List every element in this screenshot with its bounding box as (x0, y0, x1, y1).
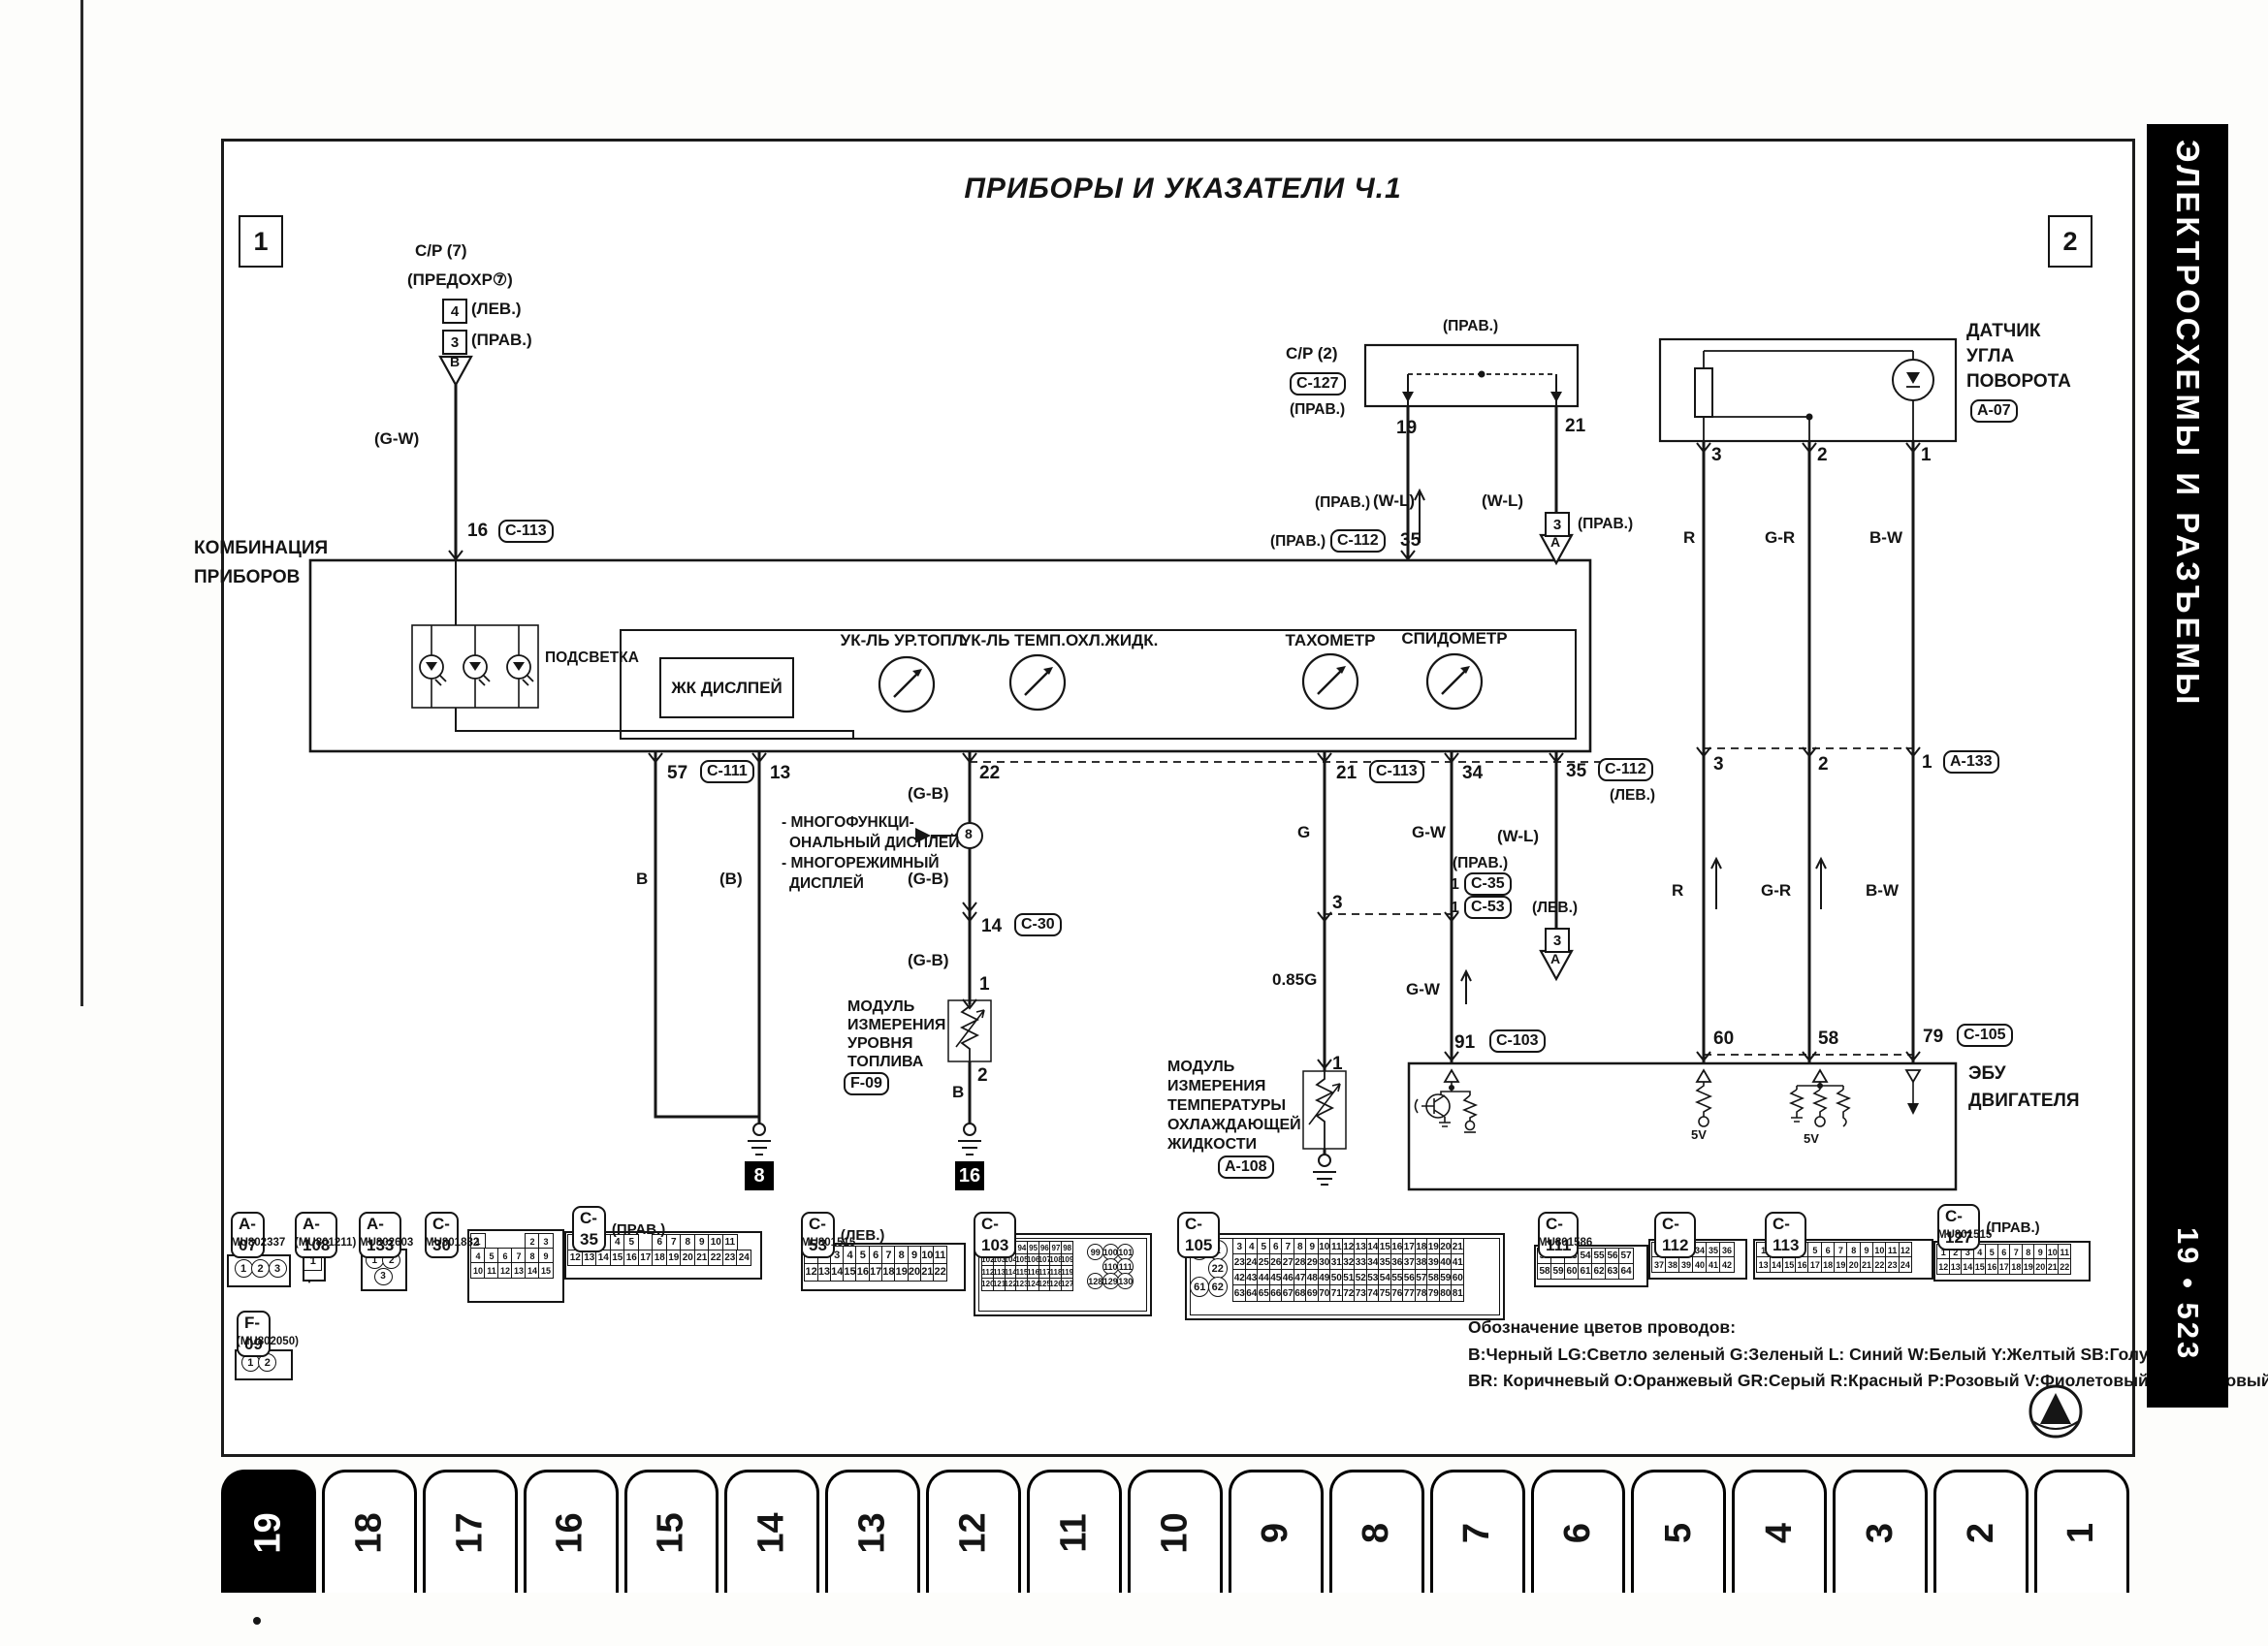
wire-gw2-label: G-W (1406, 981, 1440, 999)
pin-cell: 60 (1451, 1269, 1464, 1286)
connector-id: C-111 (1538, 1212, 1579, 1258)
connector-label-C-35: C-35(ПРАВ.) (572, 1206, 665, 1252)
coolant-line-1: МОДУЛЬ (1167, 1059, 1234, 1076)
cp2-bracket (1365, 345, 1578, 406)
pin-cell: 99 (1087, 1244, 1103, 1260)
pin-cell: 127 (1061, 1278, 1073, 1291)
connector-code-F-09: (MU802050) (237, 1336, 299, 1347)
wire-b2-label: (B) (719, 870, 743, 889)
tab-8[interactable]: 8 (1329, 1470, 1424, 1593)
connector-label-C-30: C-30 (425, 1212, 459, 1258)
wire-bw-bottom: B-W (1866, 882, 1899, 901)
pin-21-top: 21 (1565, 417, 1585, 437)
legend-line-1: В:Черный LG:Светло зеленый G:Зеленый L: … (1468, 1345, 2180, 1364)
connector-ref-f09: F-09 (844, 1072, 889, 1095)
connector-ref-a108: A-108 (1218, 1155, 1274, 1179)
tab-3[interactable]: 3 (1833, 1470, 1928, 1593)
connector-code-A-07: MU802337 (231, 1237, 285, 1249)
w35-triangle-pin: 3 (1545, 928, 1570, 953)
cp2-top-side: (ПРАВ.) (1443, 318, 1498, 334)
connector-code-C-53: MU801515 (801, 1237, 855, 1249)
pin-cell: 64 (1618, 1263, 1634, 1280)
connector-code-A-108: (MU801211) (295, 1237, 356, 1249)
tab-4[interactable]: 4 (1732, 1470, 1827, 1593)
connector-ref-c103: C-103 (1489, 1029, 1546, 1053)
gauge-icons (879, 654, 1482, 712)
ecu-label-2: ДВИГАТЕЛЯ (1968, 1092, 2080, 1112)
connector-code-C-127: MU801515 (1937, 1229, 1992, 1241)
fuse-cp-label: C/P (7) (415, 242, 467, 261)
wire-gb1-label: (G-B) (908, 785, 948, 804)
cp2-side: (ПРАВ.) (1290, 401, 1345, 418)
tab-label: 6 (1557, 1522, 1599, 1542)
pin-cell: 130 (1117, 1273, 1134, 1289)
zone-marker-2: 2 (2048, 215, 2092, 268)
pin-cell: 3 (374, 1268, 393, 1285)
pin-cell: 24 (736, 1250, 751, 1266)
connector-ref-c127: C-127 (1290, 372, 1346, 396)
tab-10[interactable]: 10 (1128, 1470, 1223, 1593)
connector-ref-c112: C-112 (1598, 758, 1653, 781)
connector-label-C-105: C-105 (1177, 1212, 1220, 1258)
c35-pin: 1 (1451, 876, 1459, 894)
connector-id: A-108 (295, 1212, 337, 1258)
pin-34: 34 (1462, 764, 1483, 784)
tab-label: 9 (1255, 1522, 1296, 1542)
wire-bw-top: B-W (1869, 529, 1902, 548)
wire-gb3-label: (G-B) (908, 952, 948, 970)
pin-21: 21 (1336, 764, 1357, 784)
chapter-title: ЭЛЕКТРОСХЕМЫ И РАЗЪЕМЫ (2169, 140, 2206, 708)
fuel-pin-2: 2 (977, 1066, 988, 1087)
tab-label: 18 (348, 1512, 390, 1553)
pin-cell: 61 (1190, 1277, 1209, 1297)
wire-wl-left: (W-L) (1373, 492, 1415, 511)
ecu-box (1409, 1063, 1956, 1189)
sensor-label-3: ПОВОРОТА (1966, 372, 2071, 393)
tab-1[interactable]: 1 (2034, 1470, 2129, 1593)
connector-ref-c111: C-111 (700, 760, 754, 783)
connector-pins-A-07: 123 (233, 1260, 288, 1278)
ecu-5v-2: 5V (1804, 1132, 1819, 1146)
tab-5[interactable]: 5 (1631, 1470, 1726, 1593)
cp2-side-left: (ПРАВ.) (1315, 494, 1370, 511)
connector-code-A-133: MU802603 (359, 1237, 413, 1249)
wire-gw1-label: G-W (1412, 824, 1446, 842)
connector-label-F-09: F-09 (237, 1311, 271, 1357)
pin-cell: 11 (722, 1234, 738, 1250)
connector-pins-C-103: 99100101110111128129130 (1088, 1245, 1134, 1288)
connector-id: C-35 (572, 1206, 606, 1252)
fuel-wire-b: B (952, 1084, 964, 1102)
wire-gr-top: G-R (1765, 529, 1795, 548)
tab-7[interactable]: 7 (1430, 1470, 1525, 1593)
connector-pins-C-105: 3456789101112131415161718192021232425262… (1233, 1239, 1464, 1301)
connector-side: (ПРАВ.) (1986, 1219, 2039, 1236)
fuel-module-line-2: ИЗМЕРЕНИЯ (847, 1017, 945, 1034)
wire-wl-label: (W-L) (1497, 828, 1539, 846)
pin-cell: 15 (538, 1262, 554, 1279)
ecu-5v-1: 5V (1691, 1128, 1707, 1142)
connector-side: (ПРАВ.) (612, 1221, 665, 1238)
pin-cell: 41 (1451, 1253, 1464, 1271)
pin-3-mid: 3 (1332, 894, 1343, 914)
fuse-pin-right: 3 (442, 330, 467, 355)
wire-r-bottom: R (1672, 882, 1683, 901)
tab-label: 14 (751, 1512, 793, 1553)
tab-label: 8 (1356, 1522, 1397, 1542)
tab-19[interactable]: 19 (221, 1470, 316, 1593)
c112-side: (ЛЕВ.) (1610, 787, 1655, 804)
wire-gr-bottom: G-R (1761, 882, 1791, 901)
note-line-4: ДИСПЛЕЙ (789, 875, 864, 892)
pin-14: 14 (981, 917, 1002, 937)
connector-id: C-113 (1765, 1212, 1806, 1258)
connector-id: C-105 (1177, 1212, 1220, 1258)
note-line-1: - МНОГОФУНКЦИ- (782, 814, 914, 831)
tab-label: 1 (2060, 1522, 2102, 1542)
tab-2[interactable]: 2 (1933, 1470, 2028, 1593)
connector-id: A-07 (231, 1212, 265, 1258)
connector-ref-c30: C-30 (1014, 913, 1062, 936)
cp2-triangle-side: (ПРАВ.) (1578, 516, 1633, 532)
ground-id-16: 16 (955, 1161, 984, 1190)
lcd-display-box: ЖК ДИСЛПЕЙ (659, 657, 794, 718)
cluster-name-2: ПРИБОРОВ (194, 568, 300, 588)
coolant-pin-1: 1 (1332, 1055, 1343, 1075)
connector-id: F-09 (237, 1311, 271, 1357)
connector-id: A-133 (359, 1212, 401, 1258)
connector-ref-a133: A-133 (1943, 750, 1999, 774)
page-title: ПРИБОРЫ И УКАЗАТЕЛИ Ч.1 (795, 173, 1571, 206)
fuse-pin-right-side: (ПРАВ.) (471, 332, 532, 350)
coolant-line-2: ИЗМЕРЕНИЯ (1167, 1078, 1265, 1095)
tab-label: 19 (247, 1512, 289, 1553)
sensor-label-2: УГЛА (1966, 347, 2014, 367)
tab-9[interactable]: 9 (1229, 1470, 1324, 1593)
fuel-pin-1: 1 (979, 975, 990, 996)
wire-wl-right: (W-L) (1482, 492, 1523, 511)
tab-13[interactable]: 13 (825, 1470, 920, 1593)
connector-code-C-30: MU801882 (425, 1237, 479, 1249)
coolant-line-4: ОХЛАЖДАЮЩЕЙ (1167, 1117, 1301, 1134)
chapter-sidebar: ЭЛЕКТРОСХЕМЫ И РАЗЪЕМЫ 19 • 523 (2147, 124, 2228, 1408)
wiring-svg (0, 0, 2268, 1646)
tab-label: 4 (1759, 1522, 1801, 1542)
sensor-label-1: ДАТЧИК (1966, 322, 2041, 342)
tab-label: 3 (1860, 1522, 1901, 1542)
c35-side: (ПРАВ.) (1453, 855, 1508, 871)
fuel-module-line-3: УРОВНЯ (847, 1035, 912, 1053)
sensor-pin-3: 3 (1711, 446, 1722, 466)
c53-side: (ЛЕВ.) (1532, 900, 1578, 916)
tab-18[interactable]: 18 (322, 1470, 417, 1593)
page-number: 19 • 523 (2170, 1227, 2205, 1361)
connector-id: C-103 (974, 1212, 1016, 1258)
ecu-pin-79: 79 (1923, 1028, 1943, 1048)
connector-ref-c35: C-35 (1464, 872, 1512, 896)
connector-ref-c113-top: C-113 (498, 520, 554, 543)
tab-label: 12 (953, 1512, 995, 1553)
pin-19: 19 (1396, 419, 1417, 439)
sensor-resistor (1695, 368, 1712, 417)
wire-085g-label: 0.85G (1272, 971, 1317, 990)
a133-pin-3: 3 (1713, 755, 1724, 776)
connector-ref-c113: C-113 (1369, 760, 1424, 783)
pin-cell: 42 (1719, 1256, 1735, 1273)
tab-label: 7 (1456, 1522, 1498, 1542)
temp-gauge-label: УК-ЛЬ ТЕМП.ОХЛ.ЖИДК. (955, 632, 1164, 650)
tab-17[interactable]: 17 (423, 1470, 518, 1593)
zone-marker-1: 1 (239, 215, 283, 268)
connector-id: C-112 (1654, 1212, 1696, 1258)
sensor-pin-2: 2 (1817, 446, 1828, 466)
fuel-gauge-label: УК-ЛЬ УР.ТОПЛ. (834, 632, 974, 650)
note-line-2: ОНАЛЬНЫЙ ДИСПЛЕЙ (789, 835, 959, 851)
connector-code-C-111: MU801586 (1538, 1237, 1592, 1249)
tab-14[interactable]: 14 (724, 1470, 819, 1593)
ecu-label-1: ЭБУ (1968, 1064, 2006, 1085)
pin-16: 16 (467, 522, 488, 542)
connector-pins-C-30: 123456789101112131415 (471, 1234, 553, 1278)
tab-label: 10 (1154, 1512, 1196, 1553)
pin-cell: 1 (235, 1259, 253, 1278)
tab-12[interactable]: 12 (926, 1470, 1021, 1593)
wire-gw-label: (G-W) (374, 430, 419, 449)
wire-g-label: G (1297, 824, 1310, 842)
speedo-label: СПИДОМЕТР (1387, 630, 1522, 649)
pin-cell: 22 (933, 1263, 947, 1282)
connector-ref-c105: C-105 (1957, 1024, 2013, 1047)
pin-cell: 21 (1451, 1238, 1464, 1255)
pin-22: 22 (979, 764, 1000, 784)
fuse-pin-left: 4 (442, 299, 467, 324)
ecu-pin-60: 60 (1713, 1029, 1734, 1050)
pin-cell: 24 (1899, 1256, 1913, 1273)
fuse-triangle-letter: B (450, 355, 460, 369)
tab-label: 2 (1961, 1522, 2002, 1542)
connector-label-C-53: C-53(ЛЕВ.) (801, 1212, 884, 1258)
pin-cell: 62 (1208, 1277, 1228, 1297)
tab-label: 13 (852, 1512, 894, 1553)
pin-57: 57 (667, 764, 687, 784)
tab-label: 11 (1054, 1513, 1096, 1552)
cp2-label: C/P (2) (1286, 345, 1338, 364)
ecu-pin-58: 58 (1818, 1029, 1838, 1050)
splice-node-label: 8 (965, 827, 973, 841)
connector-ref-a07: A-07 (1970, 399, 2018, 423)
connector-id: C-53 (801, 1212, 835, 1258)
pin-35-top: 35 (1400, 531, 1421, 552)
pin-13: 13 (770, 764, 790, 784)
fuel-module-line-4: ТОПЛИВА (847, 1054, 923, 1071)
c53-pin: 1 (1451, 900, 1459, 917)
cp2-triangle-letter: A (1550, 535, 1560, 550)
connector-label-C-112: C-112 (1654, 1212, 1696, 1258)
pin-cell: 22 (2058, 1258, 2071, 1275)
tab-label: 17 (449, 1512, 491, 1553)
pin-91: 91 (1454, 1033, 1475, 1054)
tab-label: 5 (1658, 1522, 1700, 1542)
pin-cell: 22 (1208, 1258, 1228, 1279)
connector-label-C-103: C-103 (974, 1212, 1016, 1258)
pin-cell: 2 (251, 1259, 270, 1278)
ground-id-8: 8 (745, 1161, 774, 1190)
coolant-line-5: ЖИДКОСТИ (1167, 1136, 1257, 1154)
connector-label-A-07: A-07 (231, 1212, 265, 1258)
pin-cell: 57 (1618, 1248, 1634, 1264)
connector-label-C-111: C-111 (1538, 1212, 1579, 1258)
w35-triangle-letter: A (1550, 952, 1560, 966)
cluster-in-side: (ПРАВ.) (1270, 533, 1326, 550)
tab-11[interactable]: 11 (1027, 1470, 1122, 1593)
wire-b-label: B (636, 870, 648, 889)
connector-label-C-127: C-127(ПРАВ.) (1937, 1204, 2040, 1250)
a133-pin-1: 1 (1922, 753, 1933, 774)
page-tabs: 19181716151413121110987654321 (221, 1470, 2129, 1646)
connector-label-A-133: A-133 (359, 1212, 401, 1258)
connector-label-C-113: C-113 (1765, 1212, 1806, 1258)
pin-cell: 81 (1451, 1284, 1464, 1302)
pin-35: 35 (1566, 762, 1586, 782)
connector-ref-c112-top: C-112 (1330, 529, 1386, 553)
tab-15[interactable]: 15 (624, 1470, 719, 1593)
connector-id: C-30 (425, 1212, 459, 1258)
coolant-line-3: ТЕМПЕРАТУРЫ (1167, 1097, 1286, 1115)
fuse-pin-left-side: (ЛЕВ.) (471, 301, 522, 319)
pin-cell: 128 (1087, 1273, 1103, 1289)
cluster-box (310, 560, 1590, 751)
cluster-name-1: КОМБИНАЦИЯ (194, 539, 328, 559)
tab-16[interactable]: 16 (524, 1470, 619, 1593)
backlight-label: ПОДСВЕТКА (545, 649, 639, 666)
wire-r-top: R (1683, 529, 1695, 548)
sensor-pin-1: 1 (1921, 446, 1932, 466)
tab-label: 16 (550, 1512, 591, 1553)
pin-cell: 11 (933, 1246, 947, 1264)
fuel-module-line-1: МОДУЛЬ (847, 998, 914, 1016)
tach-label: ТАХОМЕТР (1262, 632, 1398, 650)
wire-gb2-label: (G-B) (908, 870, 948, 889)
a133-pin-2: 2 (1818, 755, 1829, 776)
pin-cell: 129 (1102, 1273, 1119, 1289)
fuse-name-label: (ПРЕДОХР⑦) (407, 271, 513, 290)
backlight-bulb-icons (420, 655, 533, 685)
tab-6[interactable]: 6 (1531, 1470, 1626, 1593)
manual-page: ПРИБОРЫ И УКАЗАТЕЛИ Ч.1 1 2 C/P (7) (ПРЕ… (0, 0, 2268, 1646)
legend-title: Обозначение цветов проводов: (1468, 1318, 1736, 1337)
connector-id: C-127 (1937, 1204, 1980, 1250)
pin-cell: 3 (269, 1259, 287, 1278)
connector-label-A-108: A-108 (295, 1212, 337, 1258)
connector-ref-c53: C-53 (1464, 896, 1512, 919)
tab-label: 15 (651, 1512, 692, 1553)
